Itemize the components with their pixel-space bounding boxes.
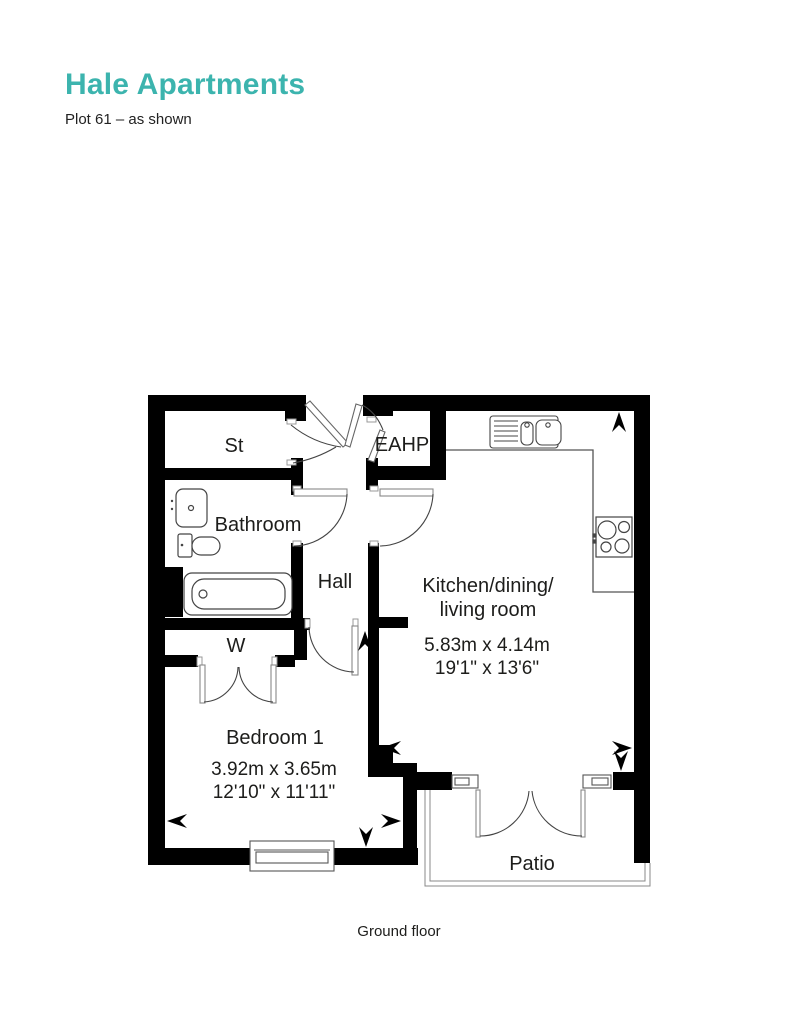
- patio-side-panel-right-inner: [592, 778, 608, 785]
- kitchen-arrow-up: [612, 412, 626, 432]
- label-hall: Hall: [318, 571, 352, 593]
- hob-control: [593, 534, 596, 537]
- patio-door-leaf-left: [476, 790, 480, 837]
- toilet-button: [181, 544, 184, 547]
- pier-bedroom-door: [294, 630, 307, 660]
- wall-bathroom-right-lower: [291, 543, 303, 628]
- wall-hall-kitchen-divider: [368, 543, 379, 745]
- pier-entry-left: [285, 395, 306, 421]
- wall-st-bottom: [165, 468, 291, 480]
- bedroom-dim-imperial: 12'10" x 11'11": [213, 782, 336, 803]
- washbasin: [171, 489, 207, 527]
- wall-bathroom-bedroom: [148, 618, 310, 630]
- floorplan: St EAHP Bathroom Hall W Bedroom 1 3.92m …: [140, 380, 670, 960]
- label-eahp: EAHP: [375, 434, 429, 456]
- patio-door-leaf-right: [581, 790, 585, 837]
- label-bathroom: Bathroom: [215, 514, 302, 536]
- bedroom-door-leaf: [352, 626, 358, 675]
- basin-drain: [189, 506, 194, 511]
- hob-ring: [598, 521, 616, 539]
- wardrobe-door-arc-left: [204, 667, 238, 702]
- wall-top-left: [148, 395, 306, 411]
- bathtub: [184, 573, 292, 615]
- wall-nib-kitchen: [379, 617, 408, 628]
- jamb: [370, 541, 378, 546]
- jamb: [367, 417, 376, 422]
- wall-wardrobe-right: [275, 655, 295, 667]
- basin-dot: [171, 500, 173, 502]
- wall-top-right: [363, 395, 650, 411]
- label-patio: Patio: [509, 853, 555, 875]
- wall-eahp-bottom: [376, 466, 446, 480]
- label-bedroom: Bedroom 1: [226, 727, 324, 749]
- wardrobe-door-leaf-right: [271, 665, 276, 703]
- sink-tap: [546, 423, 550, 427]
- toilet-bowl: [192, 537, 220, 555]
- bedroom-window-inner: [256, 852, 328, 863]
- wardrobe-door-arc-right: [239, 667, 273, 702]
- entry-second-leaf: [345, 404, 362, 447]
- hob-ring: [601, 542, 611, 552]
- label-st: St: [225, 435, 244, 457]
- basin-dot: [171, 508, 173, 510]
- jamb: [305, 619, 310, 628]
- bathroom-door-arc: [294, 494, 347, 546]
- plot-subtitle: Plot 61 – as shown: [65, 111, 192, 128]
- front-door-leaf: [305, 401, 348, 447]
- sink-tap: [525, 423, 529, 427]
- label-wardrobe: W: [227, 635, 246, 657]
- toilet-cistern: [178, 534, 192, 557]
- kitchen-dim-imperial: 19'1" x 13'6": [435, 658, 539, 679]
- jamb: [370, 486, 378, 491]
- kitchen-arrow-down: [614, 751, 628, 771]
- page-title: Hale Apartments: [65, 68, 305, 102]
- pier-entry-right: [363, 395, 393, 416]
- wall-wardrobe-left: [148, 655, 198, 667]
- hob-ring: [615, 539, 629, 553]
- kitchen-door-arc: [380, 494, 433, 546]
- kitchen-door-leaf: [380, 489, 433, 496]
- bathroom-door-leaf: [294, 489, 347, 496]
- patio-door-arc-right: [532, 791, 582, 836]
- label-kitchen-line1: Kitchen/dining/: [422, 575, 554, 597]
- bedroom-arrow-left: [167, 814, 187, 828]
- floor-caption: Ground floor: [357, 923, 440, 940]
- hob-control: [593, 540, 596, 543]
- wall-right: [634, 395, 650, 863]
- label-kitchen-line2: living room: [440, 599, 537, 621]
- bedroom-arrow-right: [381, 814, 401, 828]
- bedroom-arrow-down: [359, 827, 373, 847]
- patio-side-panel-left-inner: [455, 778, 469, 785]
- patio-door-arc-left: [480, 791, 529, 836]
- bedroom-door-arc: [309, 627, 354, 672]
- kitchen-sink: [490, 416, 561, 448]
- wall-bath-stub: [165, 567, 183, 617]
- hob: [593, 517, 632, 557]
- wall-bottom-left: [148, 848, 252, 865]
- toilet: [178, 534, 220, 557]
- jamb: [287, 419, 296, 424]
- wall-bedroom-right: [403, 763, 417, 865]
- wall-patio-right: [613, 772, 650, 790]
- bathtub-drain: [199, 590, 207, 598]
- hob-ring: [619, 522, 630, 533]
- bedroom-dim-metric: 3.92m x 3.65m: [211, 759, 337, 780]
- wardrobe-door-leaf-left: [200, 665, 205, 703]
- kitchen-dim-metric: 5.83m x 4.14m: [424, 635, 550, 656]
